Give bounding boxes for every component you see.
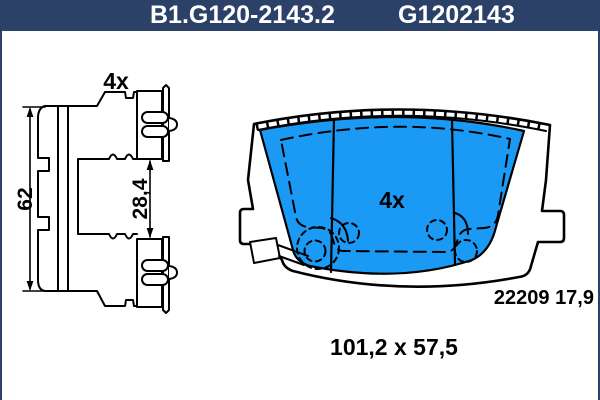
pad-dimensions-label: 101,2 x 57,5: [330, 334, 458, 360]
side-view: [23, 85, 177, 313]
side-view-plate-lines: [58, 107, 68, 291]
technical-drawing: 4x 62 28,4: [0, 31, 600, 400]
side-view-quantity-label: 4x: [103, 68, 129, 94]
side-view-spacing-label: 28,4: [129, 178, 152, 219]
side-view-upper-clip: [137, 85, 177, 161]
side-view-lower-clip: [137, 237, 177, 313]
brake-pad-datasheet: B1.G120-2143.2 G1202143: [0, 0, 600, 400]
wva-thickness-label: 22209 17,9: [494, 287, 594, 309]
catalog-number: G1202143: [398, 0, 515, 31]
side-view-height-label: 62: [14, 187, 37, 210]
part-number: B1.G120-2143.2: [150, 0, 335, 31]
side-view-outline: [38, 92, 137, 306]
header-bar: B1.G120-2143.2 G1202143: [0, 0, 600, 31]
front-view-quantity-label: 4x: [379, 187, 405, 213]
